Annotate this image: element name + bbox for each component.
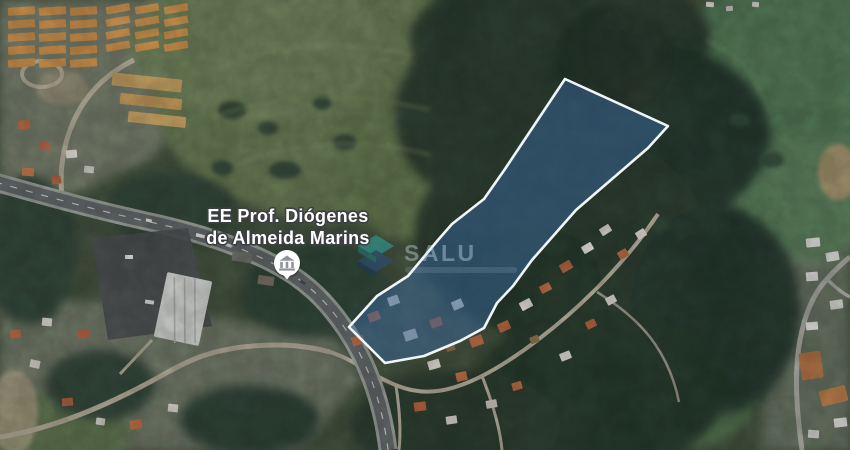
poi-label-line1: EE Prof. Diógenes: [207, 206, 368, 226]
light-overlay: [0, 0, 850, 450]
watermark-tagline-strip: [405, 267, 517, 273]
poi-label-line2: de Almeida Marins: [206, 228, 369, 248]
satellite-map-canvas[interactable]: SALU EE Prof. Diógenes de Almeida Marins: [0, 0, 850, 450]
map-render: SALU EE Prof. Diógenes de Almeida Marins: [0, 0, 850, 450]
watermark-brand-text: SALU: [404, 240, 477, 266]
